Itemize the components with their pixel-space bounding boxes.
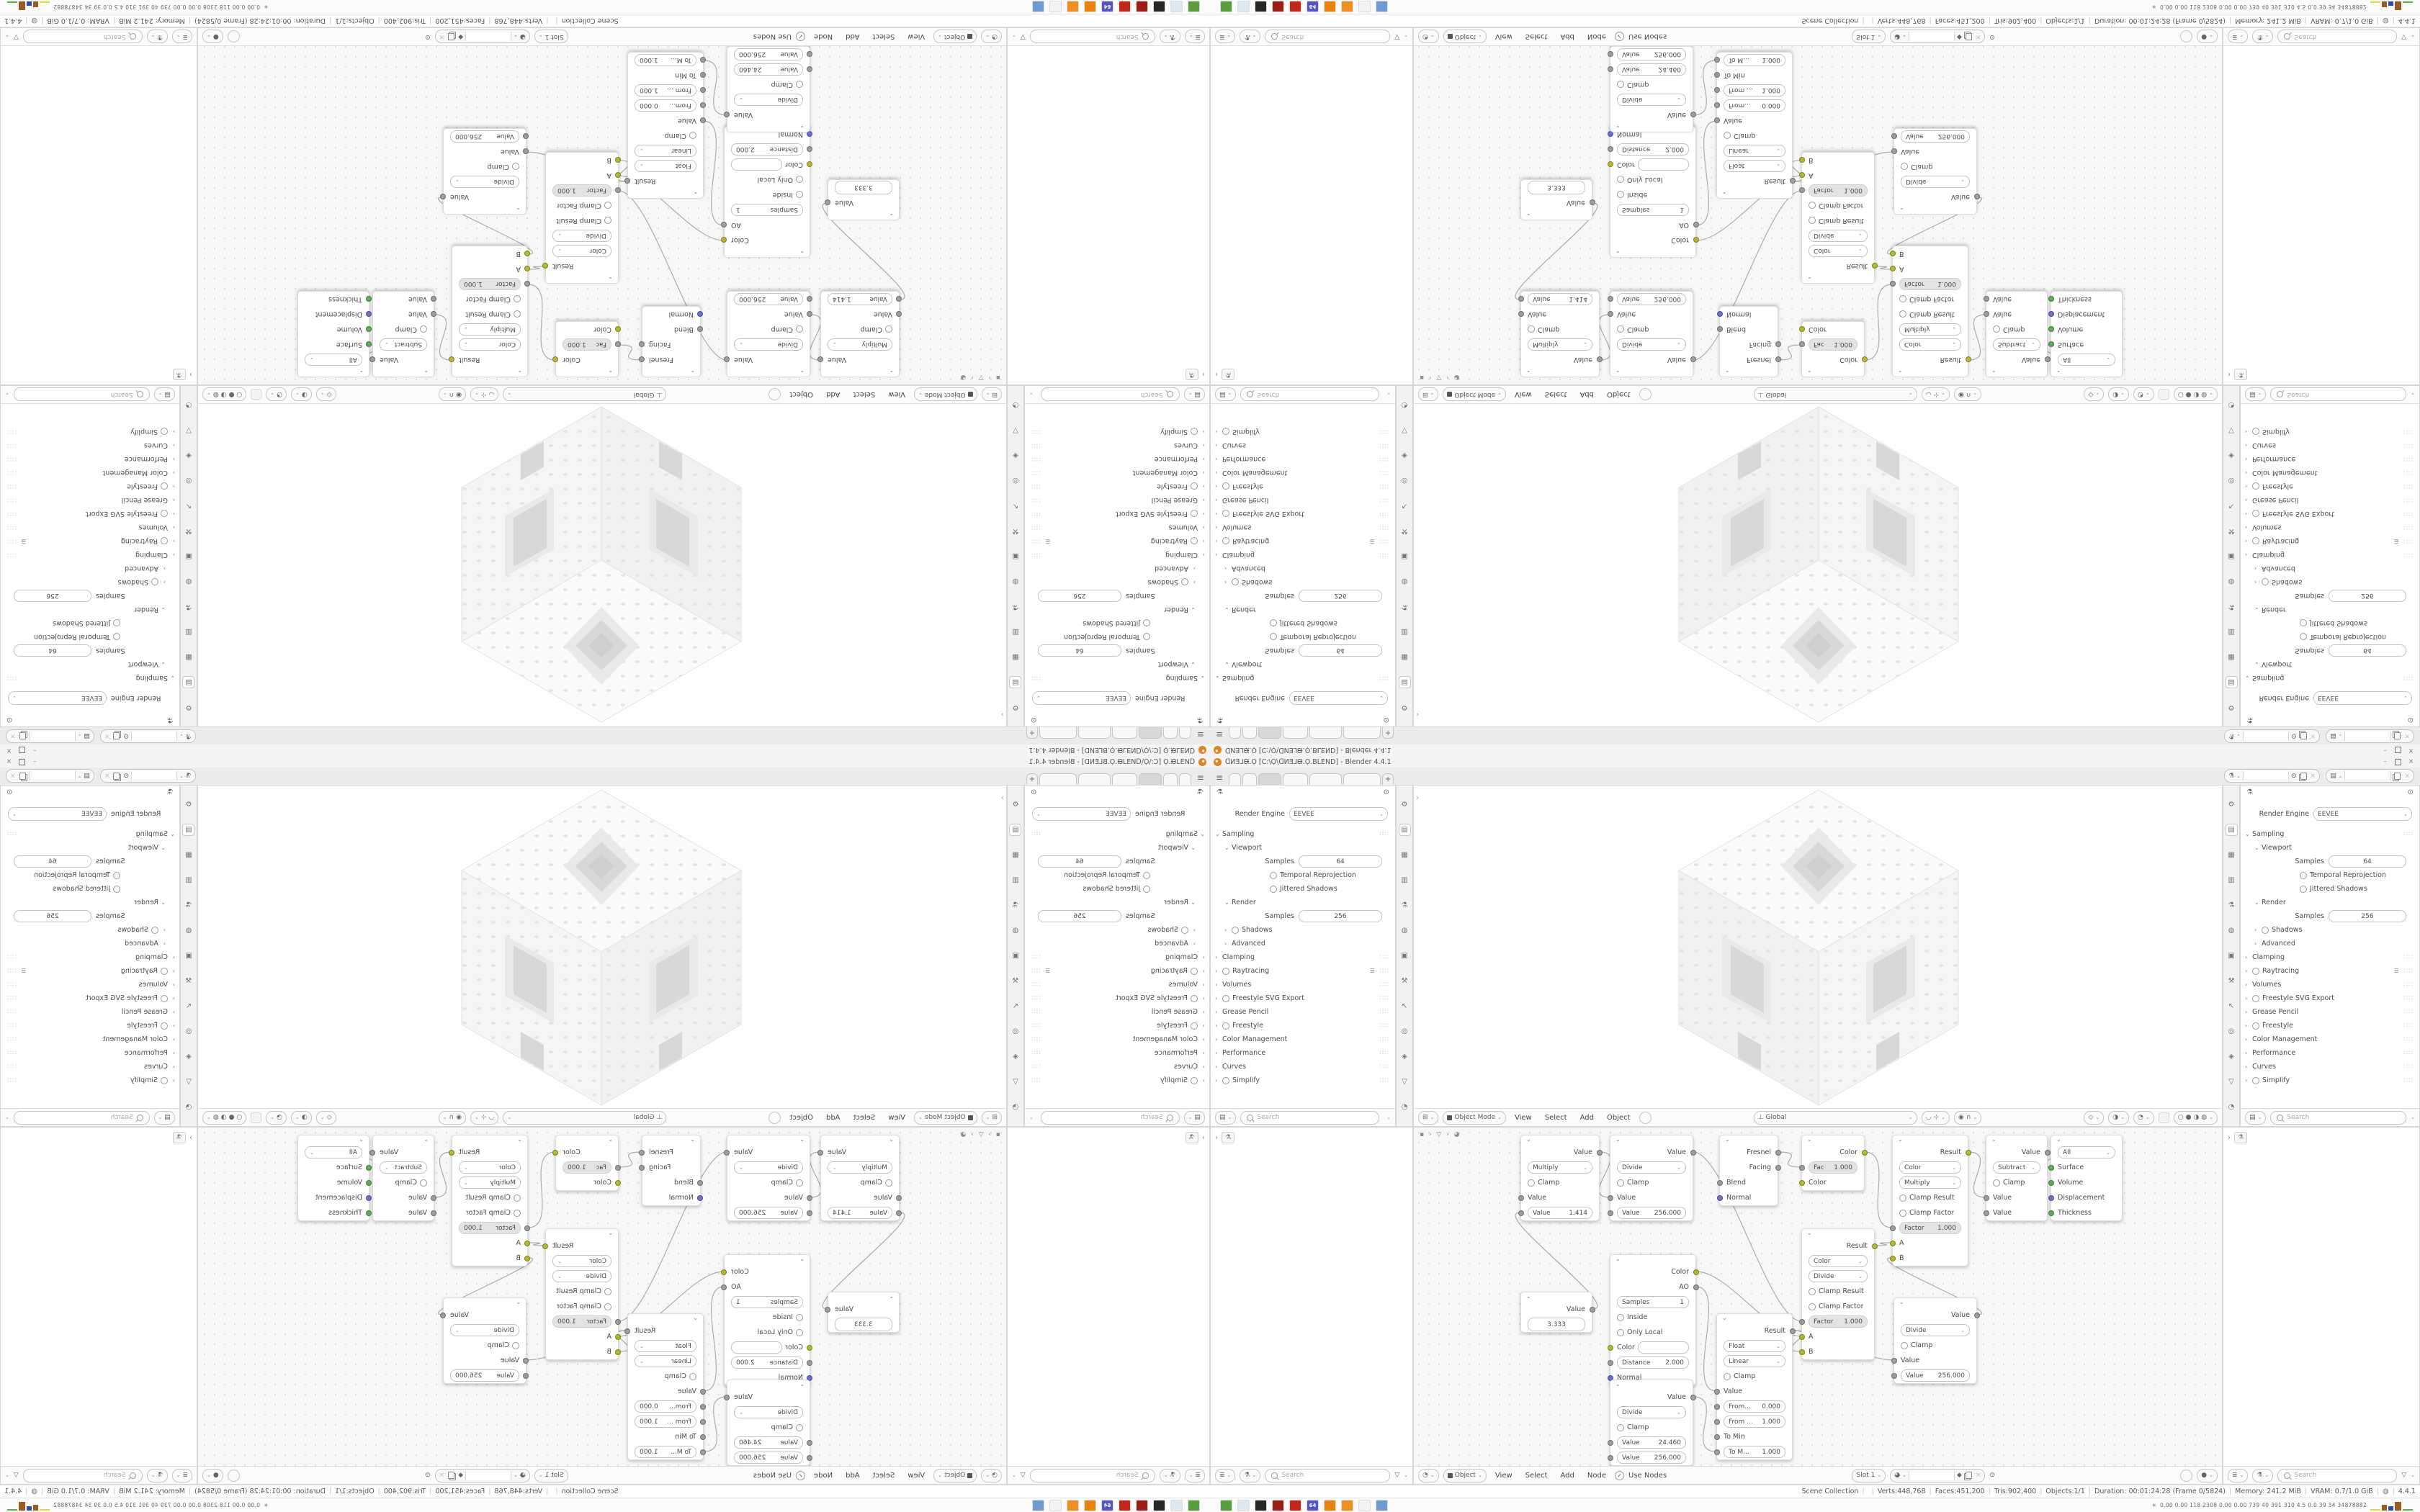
properties-tab-icon-10[interactable]: ◎ — [1399, 1025, 1411, 1038]
render-engine-dropdown[interactable]: EEVEE⌄ — [1289, 807, 1388, 821]
value-field[interactable]: 3.333 — [1528, 1318, 1585, 1331]
node-math-multiply[interactable]: ⌄ValueMultiply⌄ClampValueValue1.414 — [1520, 291, 1600, 377]
gizmo-dropdown[interactable]: ◇⌄ — [316, 1111, 336, 1125]
properties-row-samples[interactable]: Samples64 — [4, 855, 175, 868]
chevron-down-icon[interactable]: ⌄ — [1012, 1472, 1016, 1478]
workspace-tab-1[interactable] — [1179, 727, 1191, 739]
node-math-divide-3[interactable]: ⌄ValueDivide⌄ClampValue24.460Value256.00… — [727, 1380, 810, 1466]
chevron-down-icon[interactable]: ⌄ — [5, 34, 9, 40]
workspace-tab-4[interactable] — [1112, 727, 1137, 739]
properties-row-render[interactable]: ⌄Render — [2245, 603, 2416, 616]
socket[interactable] — [1518, 1210, 1524, 1216]
close-icon[interactable]: × — [2311, 773, 2316, 780]
checkbox[interactable] — [1901, 1342, 1908, 1349]
editor-mode-button[interactable]: ⚗⌄ — [1240, 1469, 1260, 1482]
node-collapse-icon[interactable]: ⌄ — [1986, 367, 2047, 377]
node-dropdown[interactable]: Linear⌄ — [1724, 1355, 1785, 1367]
taskbar-app-red-gear[interactable] — [1119, 1500, 1131, 1511]
add-workspace-tab[interactable]: + — [1026, 727, 1038, 739]
properties-row-advanced[interactable]: ›Advanced — [1215, 562, 1392, 575]
node-dropdown[interactable]: Multiply⌄ — [459, 323, 521, 336]
checkbox[interactable] — [151, 579, 158, 586]
material-datablock-selector[interactable]: ◕⌄ ◆ × — [435, 30, 530, 44]
node-value-field[interactable]: Factor1.000 — [459, 278, 521, 290]
properties-tab-icon-3[interactable]: ▦ — [1399, 849, 1411, 861]
properties-row-volumes[interactable]: ›Volumes∷∷ — [1215, 521, 1392, 534]
menu-add[interactable]: Add — [1580, 1114, 1594, 1122]
properties-row-volumes[interactable]: ›Volumes∷∷ — [1028, 521, 1205, 534]
node-collapse-icon[interactable]: ⌄ — [1521, 367, 1599, 377]
pin-icon[interactable]: ⊙ — [6, 788, 12, 796]
properties-tab-icon-13[interactable]: ◔ — [1010, 399, 1022, 411]
node-value-field[interactable]: Factor1.000 — [1809, 1315, 1868, 1328]
checkbox[interactable] — [2252, 483, 2259, 490]
checkbox[interactable] — [1191, 428, 1198, 436]
menu-add[interactable]: Add — [1561, 33, 1574, 41]
node-value-field[interactable]: Value24.460 — [1617, 1436, 1686, 1449]
socket[interactable] — [1608, 1345, 1613, 1351]
shader-type-dropdown[interactable]: Object⌄ — [933, 1469, 977, 1482]
hamburger-menu-icon[interactable]: ≡ — [1216, 729, 1223, 739]
collapse-arrow-icon[interactable]: › — [189, 1134, 192, 1142]
node-dropdown[interactable]: Float⌄ — [635, 1340, 696, 1352]
node-value-field[interactable]: Value256.000 — [450, 1369, 519, 1382]
properties-tab-icon-4[interactable]: ▥ — [1399, 874, 1411, 886]
node-value-field[interactable]: Distance2.000 — [731, 143, 803, 156]
node-value-field[interactable]: Value256.000 — [734, 1452, 803, 1464]
taskbar-app-red-badge[interactable] — [1136, 1, 1148, 13]
properties-row-curves[interactable]: ›Curves∷∷ — [2245, 438, 2416, 452]
workspace-tab-6[interactable] — [1343, 727, 1381, 739]
workspace-tab-1[interactable] — [1229, 773, 1241, 785]
editor-type-dropdown[interactable]: ⊞⌄ — [982, 1111, 1002, 1125]
properties-tab-icon-5[interactable]: ⚗ — [1399, 600, 1411, 613]
checkbox[interactable] — [1191, 995, 1198, 1002]
node-dropdown[interactable]: Color⌄ — [459, 338, 521, 351]
socket[interactable] — [1966, 1150, 1971, 1156]
properties-row-color-management[interactable]: ›Color Management∷∷ — [1215, 466, 1392, 480]
copy-icon[interactable] — [448, 33, 454, 40]
socket[interactable] — [1872, 1243, 1878, 1249]
checkbox[interactable] — [1270, 872, 1277, 879]
taskbar-app-red-gear[interactable] — [1289, 1500, 1301, 1511]
material-name-field[interactable] — [1909, 32, 1955, 42]
properties-tab-icon-9[interactable]: ↖ — [1010, 500, 1022, 512]
node-value-field[interactable]: Value256.000 — [1617, 1207, 1686, 1219]
node-value-field[interactable]: Factor1.000 — [552, 184, 611, 197]
properties-tab-icon-6[interactable]: ◍ — [1399, 575, 1411, 588]
properties-tab-icon-9[interactable]: ↖ — [2226, 500, 2238, 512]
socket[interactable] — [725, 112, 730, 118]
socket[interactable] — [625, 1328, 631, 1334]
workspace-tab-4[interactable] — [1283, 773, 1308, 785]
node-collapse-icon[interactable]: ⌄ — [642, 1135, 700, 1145]
properties-row-shadows[interactable]: ›Shadows — [1215, 923, 1392, 937]
properties-row-grease-pencil[interactable]: ›Grease Pencil∷∷ — [2245, 493, 2416, 507]
node-map-range[interactable]: ⌄ResultFloat⌄Linear⌄ClampValueFrom...0.0… — [1716, 52, 1793, 199]
color-swatch-field[interactable] — [731, 158, 782, 171]
close-icon[interactable]: × — [439, 1472, 445, 1479]
properties-tab-icon-13[interactable]: ◔ — [2226, 1101, 2238, 1113]
checkbox[interactable] — [1528, 326, 1535, 333]
properties-row-freestyle[interactable]: ›Freestyle∷∷ — [4, 480, 175, 493]
node-collapse-icon[interactable]: ⌄ — [1610, 1380, 1693, 1390]
socket[interactable] — [640, 1150, 645, 1156]
node-dropdown[interactable]: Float⌄ — [1724, 1340, 1785, 1352]
panel-menu-icon[interactable]: ≣ — [21, 968, 27, 975]
workspace-tab-5[interactable] — [1078, 773, 1111, 785]
node-collapse-icon[interactable]: ⌄ — [298, 367, 369, 377]
checkbox[interactable] — [1724, 1373, 1731, 1380]
properties-row-advanced[interactable]: ›Advanced — [2245, 937, 2416, 950]
node-collapse-icon[interactable]: ⌄ — [1893, 367, 1968, 377]
properties-tab-icon-12[interactable]: ▽ — [183, 1076, 195, 1088]
node-collapse-icon[interactable]: ⌄ — [1802, 1135, 1864, 1145]
node-dropdown[interactable]: All⌄ — [305, 354, 362, 366]
properties-tab-icon-7[interactable]: ▣ — [183, 550, 195, 562]
taskbar-app-ghost[interactable] — [1358, 1, 1371, 13]
properties-row-color-management[interactable]: ›Color Management∷∷ — [4, 466, 175, 480]
properties-tab-icon-5[interactable]: ⚗ — [2226, 600, 2238, 613]
properties-tab-icon-11[interactable]: ◈ — [183, 1050, 195, 1063]
maximize-button[interactable] — [17, 757, 27, 766]
node-math-subtract[interactable]: ⌄ValueSubtract⌄ClampValueValue — [1986, 1135, 2048, 1221]
properties-row-sampling[interactable]: ⌄Sampling∷∷ — [1028, 827, 1205, 841]
node-math-subtract[interactable]: ⌄ValueSubtract⌄ClampValueValue — [372, 1135, 434, 1221]
properties-row-freestyle[interactable]: ›Freestyle∷∷ — [1028, 1019, 1205, 1032]
properties-tab-icon-7[interactable]: ▣ — [1399, 550, 1411, 562]
editor-type-button[interactable]: ▤⌄ — [2245, 388, 2266, 402]
checkbox[interactable] — [689, 1373, 696, 1380]
node-collapse-icon[interactable]: ⌄ — [642, 367, 700, 377]
node-canvas[interactable]: ⌄ValueMultiply⌄ClampValueValue1.414⌄Valu… — [198, 46, 1006, 384]
node-collapse-icon[interactable]: ⌄ — [298, 1135, 369, 1145]
checkbox[interactable] — [1191, 483, 1198, 490]
properties-row-viewport[interactable]: ⌄Viewport — [2245, 657, 2416, 671]
snap-target-dropdown[interactable]: ●⌄ — [202, 30, 223, 44]
filter-icon[interactable]: ▽ — [2401, 33, 2406, 40]
shader-node-editor[interactable]: ⌄ValueMultiply⌄ClampValueValue1.414⌄Valu… — [197, 27, 1007, 385]
menu-select[interactable]: Select — [1545, 1114, 1567, 1122]
checkbox[interactable] — [2300, 634, 2307, 641]
toolbar-toggle-icon[interactable]: › — [1416, 793, 1419, 802]
node-collapse-icon[interactable]: ⌄ — [444, 1298, 526, 1308]
fake-user-shield-icon[interactable]: ◆ — [458, 33, 463, 40]
node-collapse-icon[interactable]: ⌄ — [1894, 1298, 1976, 1308]
node-mix-color-divide[interactable]: ⌄ResultColor⌄Divide⌄Clamp ResultClamp Fa… — [545, 152, 619, 284]
add-workspace-tab[interactable]: + — [1382, 773, 1394, 785]
material-slot-dropdown[interactable]: Slot 1⌄ — [534, 30, 568, 44]
node-value-field[interactable]: Samples1 — [1617, 1296, 1689, 1308]
properties-tab-icon-10[interactable]: ◎ — [2226, 474, 2238, 487]
properties-tab-icon-4[interactable]: ▥ — [183, 874, 195, 886]
node-value-field[interactable]: From...0.000 — [635, 1400, 696, 1413]
search-input[interactable]: Search — [2270, 388, 2406, 402]
checkbox[interactable] — [161, 1077, 168, 1084]
node-canvas[interactable]: ⌄ValueMultiply⌄ClampValueValue1.414⌄Valu… — [198, 1128, 1006, 1466]
taskbar-app-file-manager[interactable] — [1220, 1500, 1232, 1511]
checkbox[interactable] — [151, 927, 158, 934]
render-engine-dropdown[interactable]: EEVEE⌄ — [2313, 807, 2412, 821]
search-input[interactable]: Search — [2277, 1469, 2397, 1482]
chevron-down-icon[interactable]: ⌄ — [1012, 34, 1016, 40]
taskbar-app-red-gear[interactable] — [1289, 1, 1301, 13]
editor-type-dropdown[interactable]: ◔⌄ — [981, 1469, 1002, 1482]
panel-menu-icon[interactable]: ≣ — [2393, 968, 2399, 975]
maximize-button[interactable] — [2393, 746, 2403, 755]
taskbar-app-dosbox-64[interactable]: 64 — [1307, 1, 1319, 13]
menu-add[interactable]: Add — [846, 1472, 859, 1480]
node-collapse-icon[interactable]: ⌄ — [1802, 367, 1864, 377]
node-collapse-icon[interactable]: ⌄ — [727, 367, 810, 377]
taskbar-app-file-manager[interactable] — [1188, 1, 1200, 13]
properties-row-sampling[interactable]: ⌄Sampling∷∷ — [1028, 671, 1205, 685]
properties-row-temporal-reprojection[interactable]: Temporal Reprojection — [1215, 630, 1392, 644]
collapse-arrow-icon[interactable]: › — [1215, 371, 1218, 379]
node-dropdown[interactable]: Subtract⌄ — [380, 1161, 427, 1174]
checkbox[interactable] — [604, 202, 611, 210]
filter-dropdown[interactable]: ⌄ — [5, 1115, 9, 1120]
properties-row-temporal-reprojection[interactable]: Temporal Reprojection — [2245, 630, 2416, 644]
checkbox[interactable] — [1899, 311, 1906, 318]
search-input[interactable]: Search — [14, 1111, 150, 1125]
close-icon[interactable]: × — [10, 733, 16, 740]
properties-row-freestyle-svg-export[interactable]: ›Freestyle SVG Export∷∷ — [4, 991, 175, 1005]
properties-row-temporal-reprojection[interactable]: Temporal Reprojection — [4, 630, 175, 644]
node-dropdown[interactable]: All⌄ — [2058, 354, 2115, 366]
socket[interactable] — [553, 357, 559, 363]
copy-icon[interactable] — [1966, 1472, 1972, 1479]
properties-row-shadows[interactable]: ›Shadows — [1028, 923, 1205, 937]
node-math-divide-2[interactable]: ⌄ValueDivide⌄ClampValueValue256.000 — [1894, 1297, 1977, 1384]
minimize-button[interactable]: – — [2380, 746, 2390, 755]
properties-tab-icon-2[interactable]: ▤ — [1010, 676, 1022, 688]
properties-tab-icon-7[interactable]: ▣ — [1010, 950, 1022, 962]
proportional-edit-toggle[interactable]: ◉∩⌄ — [439, 1111, 466, 1125]
node-dropdown[interactable]: Divide⌄ — [450, 1324, 519, 1336]
node-mix-color-divide[interactable]: ⌄ResultColor⌄Divide⌄Clamp ResultClamp Fa… — [1801, 1228, 1875, 1360]
properties-row-render[interactable]: ⌄Render — [1215, 896, 1392, 909]
properties-tab-icon-1[interactable]: ⚙ — [183, 798, 195, 811]
viewport-3d[interactable]: › ⊞⌄ Object Mode⌄ View Select Add Object… — [1413, 385, 2223, 727]
render-engine-dropdown[interactable]: EEVEE⌄ — [2313, 691, 2412, 705]
properties-row-samples[interactable]: Samples64 — [4, 644, 175, 657]
snap-magnet-button[interactable] — [228, 31, 240, 43]
properties-row-freestyle-svg-export[interactable]: ›Freestyle SVG Export∷∷ — [1215, 507, 1392, 521]
socket[interactable] — [1790, 1328, 1796, 1334]
checkbox[interactable] — [161, 968, 168, 975]
collapse-arrow-icon[interactable]: › — [2228, 1134, 2231, 1142]
node-collapse-icon[interactable]: ⌄ — [452, 1135, 527, 1145]
menu-view[interactable]: View — [1495, 33, 1512, 41]
properties-tab-icon-4[interactable]: ▥ — [1010, 874, 1022, 886]
taskbar-app-monitor[interactable] — [1032, 1, 1044, 13]
properties-tab-icon-8[interactable]: ⚒ — [1010, 525, 1022, 537]
properties-row-performance[interactable]: ›Performance∷∷ — [1215, 1046, 1392, 1060]
viewlayer-datablock-selector[interactable]: ▤⌄ × — [2326, 769, 2414, 783]
checkbox[interactable] — [2252, 538, 2259, 545]
taskbar-app-blender[interactable] — [1084, 1, 1096, 13]
properties-tab-icon-11[interactable]: ◈ — [2226, 449, 2238, 462]
socket[interactable] — [625, 179, 631, 184]
properties-row-advanced[interactable]: ›Advanced — [4, 937, 175, 950]
filter-dropdown[interactable]: ⌄ — [1386, 392, 1391, 397]
checkbox[interactable] — [420, 1179, 427, 1187]
search-input[interactable]: Search — [1265, 30, 1390, 44]
close-icon[interactable]: × — [2404, 773, 2410, 780]
properties-row-simplify[interactable]: ›Simplify∷∷ — [2245, 1074, 2416, 1087]
menu-add[interactable]: Add — [826, 1114, 840, 1122]
properties-row-shadows[interactable]: ›Shadows — [4, 575, 175, 589]
value-field[interactable]: 3.333 — [835, 181, 892, 194]
taskbar-app-firefox[interactable] — [1341, 1, 1353, 13]
collapse-arrow-icon[interactable]: › — [1202, 1134, 1205, 1142]
node-math-divide-2[interactable]: ⌄ValueDivide⌄ClampValueValue256.000 — [443, 128, 526, 215]
node-mix-color-multiply[interactable]: ⌄ResultColor⌄Multiply⌄Clamp ResultClamp … — [1892, 246, 1968, 377]
properties-tab-icon-13[interactable]: ◔ — [1399, 399, 1411, 411]
mode-transfer-button[interactable] — [1639, 1112, 1652, 1124]
socket[interactable] — [370, 357, 376, 363]
checkbox[interactable] — [796, 176, 803, 184]
overlays-dropdown[interactable]: ◑⌄ — [2108, 1111, 2129, 1125]
node-value-field[interactable]: Factor1.000 — [1899, 1222, 1961, 1234]
node-value-field[interactable]: Fac1.000 — [563, 1161, 611, 1174]
node-mix-color-multiply[interactable]: ⌄ResultColor⌄Multiply⌄Clamp ResultClamp … — [452, 246, 528, 377]
properties-row-render[interactable]: ⌄Render — [1028, 896, 1205, 909]
node-value-field[interactable]: From ...1.000 — [635, 1416, 696, 1428]
properties-tab-icon-13[interactable]: ◔ — [183, 399, 195, 411]
shading-mode-group[interactable]: ○●◑◍⌄ — [2174, 388, 2218, 402]
node-layer-weight[interactable]: ⌄FresnelFacingBlendNormal — [642, 1135, 701, 1206]
properties-row-curves[interactable]: ›Curves∷∷ — [2245, 1060, 2416, 1074]
value-field[interactable]: 256 — [1299, 910, 1382, 922]
node-value-field[interactable]: Fac1.000 — [563, 338, 611, 351]
properties-tab-icon-13[interactable]: ◔ — [1010, 1101, 1022, 1113]
value-field[interactable]: 64 — [1038, 855, 1121, 868]
node-math-subtract[interactable]: ⌄ValueSubtract⌄ClampValueValue — [372, 291, 434, 377]
properties-tab-icon-6[interactable]: ◍ — [2226, 924, 2238, 937]
properties-tab-icon-6[interactable]: ◍ — [2226, 575, 2238, 588]
node-math-divide[interactable]: ⌄ValueDivide⌄ClampValueValue256.000 — [727, 291, 810, 377]
node-mix-color-multiply[interactable]: ⌄ResultColor⌄Multiply⌄Clamp ResultClamp … — [452, 1135, 528, 1266]
close-icon[interactable]: × — [2311, 733, 2316, 740]
properties-row-viewport[interactable]: ⌄Viewport — [1215, 841, 1392, 855]
properties-row-clamping[interactable]: ›Clamping∷∷ — [2245, 950, 2416, 964]
properties-row-raytracing[interactable]: ›Raytracing≣∷∷ — [1028, 534, 1205, 548]
checkbox[interactable] — [796, 1179, 803, 1187]
properties-tab-icon-6[interactable]: ◍ — [1010, 924, 1022, 937]
node-collapse-icon[interactable]: ⌄ — [444, 204, 526, 214]
copy-icon[interactable] — [2394, 733, 2401, 740]
scene-name-field[interactable] — [131, 771, 177, 780]
properties-row-performance[interactable]: ›Performance∷∷ — [2245, 452, 2416, 466]
node-value-field[interactable]: To M...1.000 — [1724, 54, 1785, 66]
node-collapse-icon[interactable]: ⌄ — [1521, 1135, 1599, 1145]
node-dropdown[interactable]: Divide⌄ — [450, 176, 519, 188]
editor-type-button[interactable]: ≣⌄ — [1215, 1469, 1235, 1482]
node-math-divide[interactable]: ⌄ValueDivide⌄ClampValueValue256.000 — [1610, 1135, 1693, 1221]
node-math-subtract[interactable]: ⌄ValueSubtract⌄ClampValueValue — [1986, 291, 2048, 377]
shader-type-dropdown[interactable]: Object⌄ — [1443, 1469, 1487, 1482]
editor-type-button[interactable]: ▤⌄ — [1215, 388, 1236, 402]
properties-row-volumes[interactable]: ›Volumes∷∷ — [2245, 978, 2416, 991]
node-math-multiply[interactable]: ⌄ValueMultiply⌄ClampValueValue1.414 — [1520, 1135, 1600, 1221]
toolbar-toggle-icon[interactable]: › — [1001, 710, 1004, 719]
node-ambient-occlusion[interactable]: ⌄ColorAOSamples1InsideOnly LocalColorDis… — [724, 1254, 810, 1386]
filter-dropdown[interactable]: ⌄ — [2411, 392, 2415, 397]
properties-row-render[interactable]: ⌄Render — [4, 603, 175, 616]
properties-tab-icon-1[interactable]: ⚙ — [1010, 798, 1022, 811]
properties-row-clamping[interactable]: ›Clamping∷∷ — [1028, 950, 1205, 964]
properties-row-performance[interactable]: ›Performance∷∷ — [1028, 1046, 1205, 1060]
checkbox[interactable] — [1191, 1022, 1198, 1030]
properties-tab-icon-11[interactable]: ◈ — [1399, 1050, 1411, 1063]
node-collapse-icon[interactable]: ⌄ — [452, 367, 527, 377]
transform-orientation-dropdown[interactable]: ⊥Global⌄ — [1754, 388, 1917, 402]
render-engine-dropdown[interactable]: EEVEE⌄ — [1032, 691, 1131, 705]
scene-datablock-selector[interactable]: ⚗⌄ ⊙ × — [2224, 729, 2320, 743]
socket[interactable] — [1775, 1165, 1781, 1171]
node-value-field[interactable]: Value1.414 — [1528, 1207, 1592, 1219]
shader-node-editor[interactable]: ⌄ValueMultiply⌄ClampValueValue1.414⌄Valu… — [1413, 1127, 2223, 1485]
mode-transfer-button[interactable] — [1639, 389, 1652, 401]
node-value[interactable]: ⌄Value3.333 — [828, 179, 900, 220]
editor-type-button[interactable]: ▤⌄ — [1184, 388, 1205, 402]
value-field[interactable]: 64 — [1038, 644, 1121, 657]
workspace-tab-5[interactable] — [1078, 727, 1111, 739]
node-dropdown[interactable]: Divide⌄ — [1617, 1161, 1686, 1174]
properties-tab-icon-11[interactable]: ◈ — [1010, 449, 1022, 462]
hamburger-menu-icon[interactable]: ≡ — [1197, 729, 1204, 739]
socket[interactable] — [640, 1165, 645, 1171]
properties-row-samples[interactable]: Samples256 — [4, 909, 175, 923]
properties-row-volumes[interactable]: ›Volumes∷∷ — [4, 521, 175, 534]
node-value-field[interactable]: Value256.000 — [734, 48, 803, 60]
checkbox[interactable] — [514, 296, 521, 303]
properties-row-freestyle[interactable]: ›Freestyle∷∷ — [1028, 480, 1205, 493]
node-collapse-icon[interactable]: ⌄ — [1717, 189, 1792, 198]
checkbox[interactable] — [1899, 1194, 1906, 1202]
properties-row-volumes[interactable]: ›Volumes∷∷ — [2245, 521, 2416, 534]
node-dropdown[interactable]: Float⌄ — [635, 160, 696, 172]
material-name-field[interactable] — [465, 1471, 511, 1480]
fake-user-shield-icon[interactable]: ◆ — [1957, 1472, 1962, 1479]
copy-icon[interactable] — [113, 773, 120, 780]
filter-dropdown[interactable]: ⌄ — [2411, 1115, 2415, 1120]
node-dropdown[interactable]: Divide⌄ — [1617, 94, 1686, 106]
checkbox[interactable] — [1191, 968, 1198, 975]
close-icon[interactable]: × — [104, 733, 110, 740]
filter-icon[interactable]: ▽ — [14, 1472, 19, 1479]
checkbox[interactable] — [1191, 538, 1198, 545]
properties-row-clamping[interactable]: ›Clamping∷∷ — [1215, 548, 1392, 562]
use-nodes-checkbox[interactable]: ✓ — [1615, 32, 1624, 42]
pin-icon[interactable]: ⊙ — [1031, 788, 1036, 796]
properties-row-freestyle-svg-export[interactable]: ›Freestyle SVG Export∷∷ — [2245, 991, 2416, 1005]
properties-row-raytracing[interactable]: ›Raytracing≣∷∷ — [1215, 534, 1392, 548]
properties-row-sampling[interactable]: ⌄Sampling∷∷ — [1215, 671, 1392, 685]
properties-row-freestyle-svg-export[interactable]: ›Freestyle SVG Export∷∷ — [2245, 507, 2416, 521]
menu-object[interactable]: Object — [789, 1114, 813, 1122]
properties-tab-icon-5[interactable]: ⚗ — [1010, 600, 1022, 613]
socket[interactable] — [543, 1243, 549, 1249]
pin-icon[interactable]: ⊙ — [123, 773, 129, 780]
filter-dropdown[interactable]: ⌄ — [1029, 392, 1034, 397]
properties-tab-icon-10[interactable]: ◎ — [183, 474, 195, 487]
checkbox[interactable] — [113, 886, 120, 893]
close-icon[interactable]: × — [2404, 733, 2410, 740]
properties-tab-icon-1[interactable]: ⚙ — [183, 701, 195, 714]
